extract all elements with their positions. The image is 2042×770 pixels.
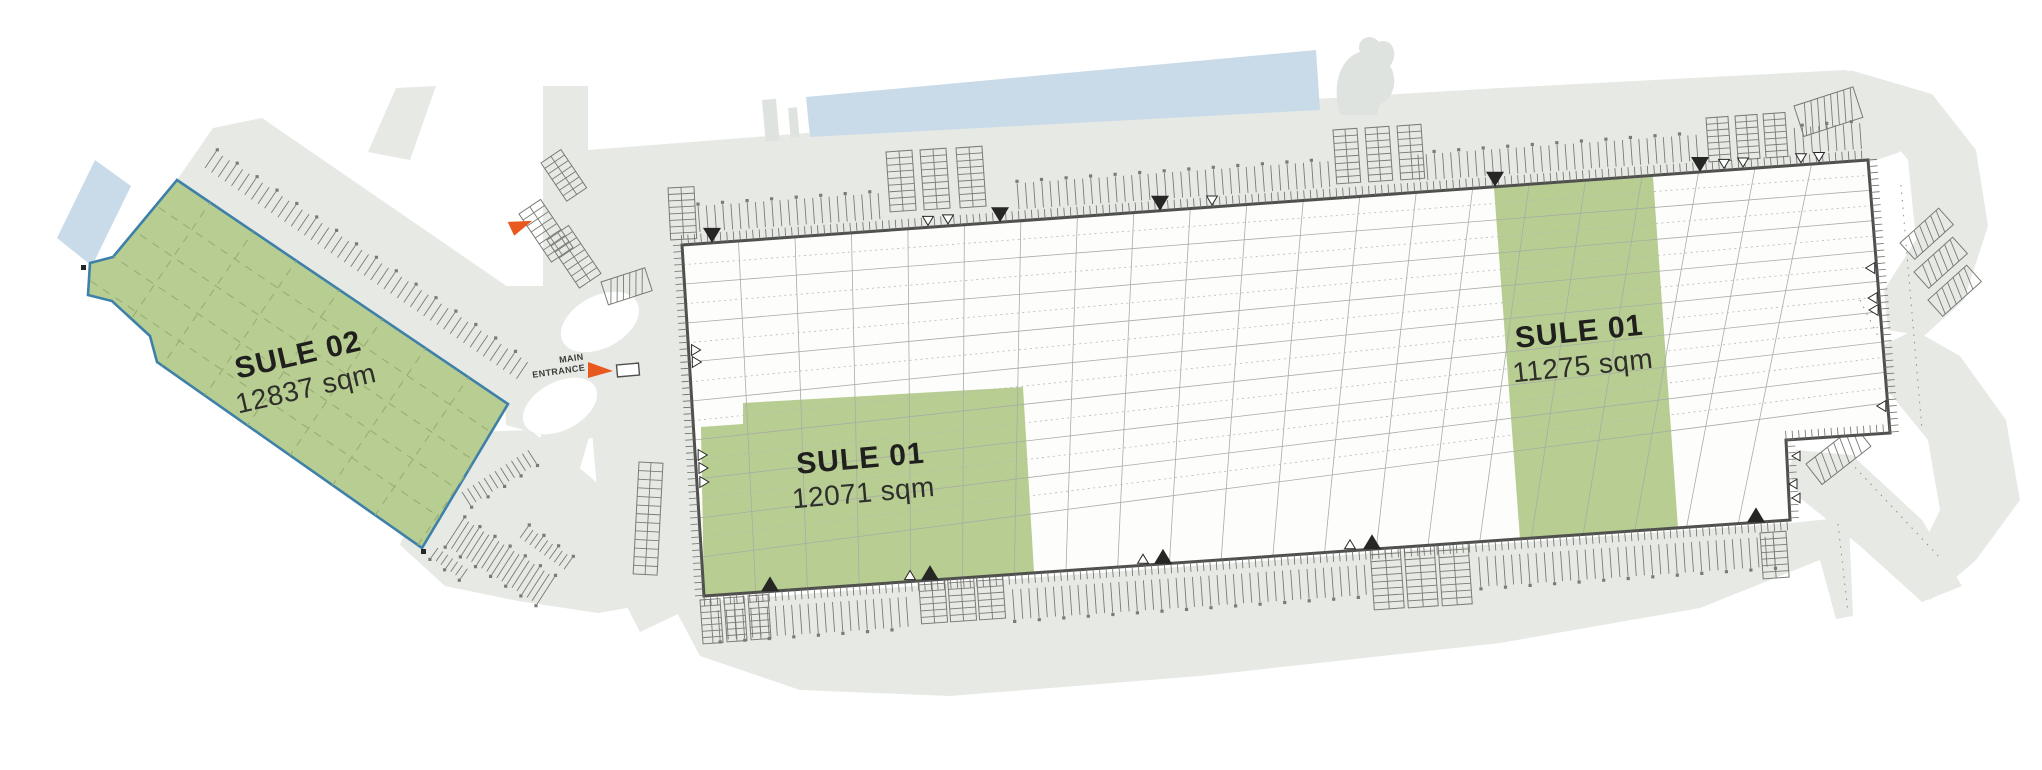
survey-dot: [421, 549, 426, 554]
secondary-entrance-arrow-icon: [508, 216, 535, 236]
landscape-strip: [762, 99, 780, 142]
site-plan-canvas: SULE 02 12837 sqm SULE 01 12071 sqm SULE…: [0, 0, 2042, 770]
unit-label-sule-01-a[interactable]: SULE 01 12071 sqm: [788, 437, 936, 515]
landscape-strip: [788, 107, 800, 138]
survey-dot: [81, 265, 86, 270]
road-stub-north: [368, 86, 436, 160]
dock-marker-icon: [1792, 493, 1800, 503]
gatehouse-marker: [617, 363, 640, 377]
